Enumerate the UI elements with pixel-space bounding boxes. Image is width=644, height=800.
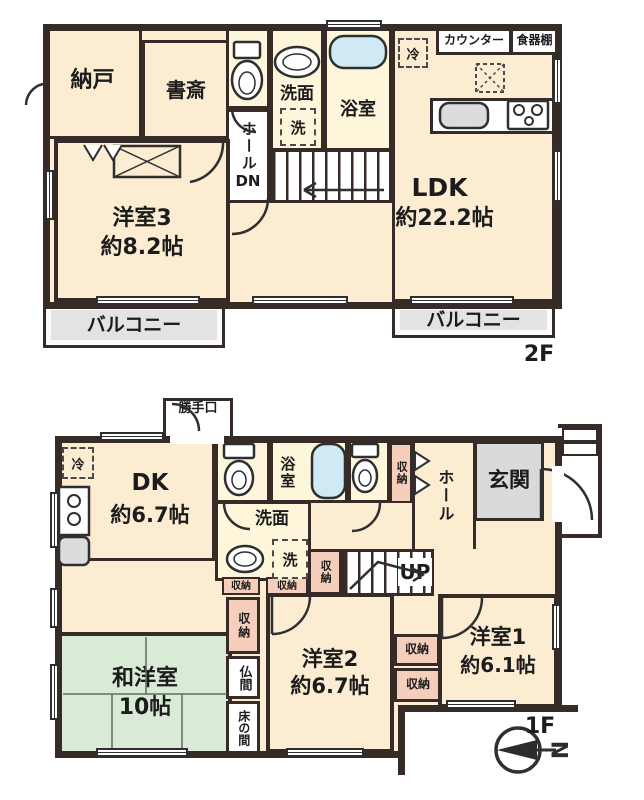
storage-label: 収納 <box>235 612 251 640</box>
washroom-1f-label: 洗面 <box>237 508 307 532</box>
fridge-2f: 冷 <box>398 38 428 68</box>
floor2-label: 2F <box>516 342 562 368</box>
tatami-size-label: 10帖 <box>119 694 172 723</box>
genkan: 玄関 <box>474 441 544 521</box>
storage-label: 収納 <box>277 580 297 593</box>
room-toilet-1f-a <box>215 439 270 503</box>
storage-mid-1: 収納 <box>394 634 440 666</box>
tatami-name-label: 和洋室 <box>112 665 178 694</box>
window <box>552 604 561 650</box>
storage-label: 収納 <box>394 461 408 485</box>
room-yoshitsu3: 洋室3 約8.2帖 <box>54 139 230 302</box>
storage-by-tatami: 収納 <box>226 597 260 654</box>
cupboard-label: 食器棚 <box>516 33 552 49</box>
backdoor-gap <box>170 434 224 444</box>
porch-step <box>562 428 598 442</box>
storage-label: 収納 <box>318 560 332 584</box>
room-yoshitsu2: 洋室2 約6.7帖 <box>266 593 394 753</box>
dk-name-label: DK <box>95 470 205 496</box>
window <box>96 296 200 305</box>
room-nando-label: 納戸 <box>70 67 114 96</box>
bath-2f <box>324 27 392 151</box>
room-shosai-label: 書斎 <box>166 77 206 103</box>
room-ldk <box>392 27 555 302</box>
porch-step <box>562 442 598 456</box>
window <box>286 748 364 757</box>
room2-size-label: 約6.7帖 <box>290 673 369 700</box>
butsuma: 仏間 <box>226 656 260 699</box>
storage-by-stairs: 収納 <box>308 549 342 595</box>
storage-by-toilet: 収納 <box>390 443 412 503</box>
hall-2f: ホール DN <box>226 109 270 203</box>
storage-mid-2: 収納 <box>394 668 442 702</box>
cupboard-2f: 食器棚 <box>510 27 559 55</box>
butsuma-label: 仏間 <box>235 665 252 691</box>
hall-1f: ホール <box>412 439 476 549</box>
room-nando: 納戸 <box>43 24 142 139</box>
ldk-size-label: 約22.2帖 <box>382 206 507 232</box>
window <box>410 296 514 305</box>
room1-size-label: 約6.1帖 <box>460 652 535 678</box>
window <box>45 170 54 220</box>
tokonoma-label: 床の間 <box>235 710 251 746</box>
storage-small-1: 収納 <box>222 577 260 595</box>
entrance-door-gap <box>552 466 564 522</box>
hall-2f-dn-label: DN <box>235 172 260 192</box>
balcony-right: バルコニー <box>392 302 555 338</box>
room3-size-label: 約8.2帖 <box>101 234 184 263</box>
window <box>50 588 59 628</box>
balcony-right-label: バルコニー <box>426 308 521 333</box>
bath-2f-label: 浴室 <box>324 98 392 122</box>
window <box>446 700 516 709</box>
room1-name-label: 洋室1 <box>470 624 527 651</box>
washer-2f-label: 洗 <box>290 117 305 138</box>
counter-label: カウンター <box>444 33 504 49</box>
washer-1f: 洗 <box>272 539 308 579</box>
fridge-1f: 冷 <box>62 447 94 479</box>
ldk-name-label: LDK <box>392 174 487 202</box>
backdoor-label: 勝手口 <box>178 401 217 418</box>
kitchen-counter-2f: カウンター <box>436 27 512 55</box>
room-tatami: 和洋室 10帖 <box>58 632 232 756</box>
fridge-2f-label: 冷 <box>406 44 419 63</box>
washer-1f-label: 洗 <box>282 549 297 570</box>
dk-size-label: 約6.7帖 <box>90 502 210 528</box>
floor1-label: 1F <box>518 714 562 740</box>
room-shosai: 書斎 <box>142 40 230 139</box>
room2-name-label: 洋室2 <box>302 646 359 673</box>
window <box>252 296 348 305</box>
stairs-2f <box>270 149 392 203</box>
storage-label: 収納 <box>406 677 430 693</box>
window <box>553 58 562 104</box>
room3-name-label: 洋室3 <box>112 205 171 234</box>
stairs-up-label: UP <box>398 558 432 586</box>
bath-1f-label: 浴室 <box>276 446 298 500</box>
window <box>50 664 59 720</box>
window <box>96 748 188 757</box>
window <box>326 20 382 29</box>
room-yoshitsu1: 洋室1 約6.1帖 <box>438 594 558 708</box>
storage-label: 収納 <box>231 580 251 593</box>
room-toilet-1f-b <box>348 439 390 503</box>
washer-2f: 洗 <box>280 108 316 146</box>
hall-1f-label: ホール <box>434 469 455 523</box>
hall-2f-label: ホール <box>238 121 258 172</box>
balcony-left-label: バルコニー <box>87 313 182 338</box>
floorplan-page: { "colors": { "wall": "#362b26", "room_c… <box>0 0 644 800</box>
kitchen-island-2f <box>430 98 555 134</box>
genkan-label: 玄関 <box>488 467 530 494</box>
fridge-1f-label: 冷 <box>71 454 84 473</box>
tokonoma: 床の間 <box>226 701 260 754</box>
balcony-left: バルコニー <box>43 302 225 348</box>
window <box>50 492 59 548</box>
washroom-2f-label: 洗面 <box>270 84 324 106</box>
room-toilet-2f <box>226 27 270 109</box>
window <box>553 150 562 202</box>
window <box>100 432 164 441</box>
storage-label: 収納 <box>405 642 429 658</box>
